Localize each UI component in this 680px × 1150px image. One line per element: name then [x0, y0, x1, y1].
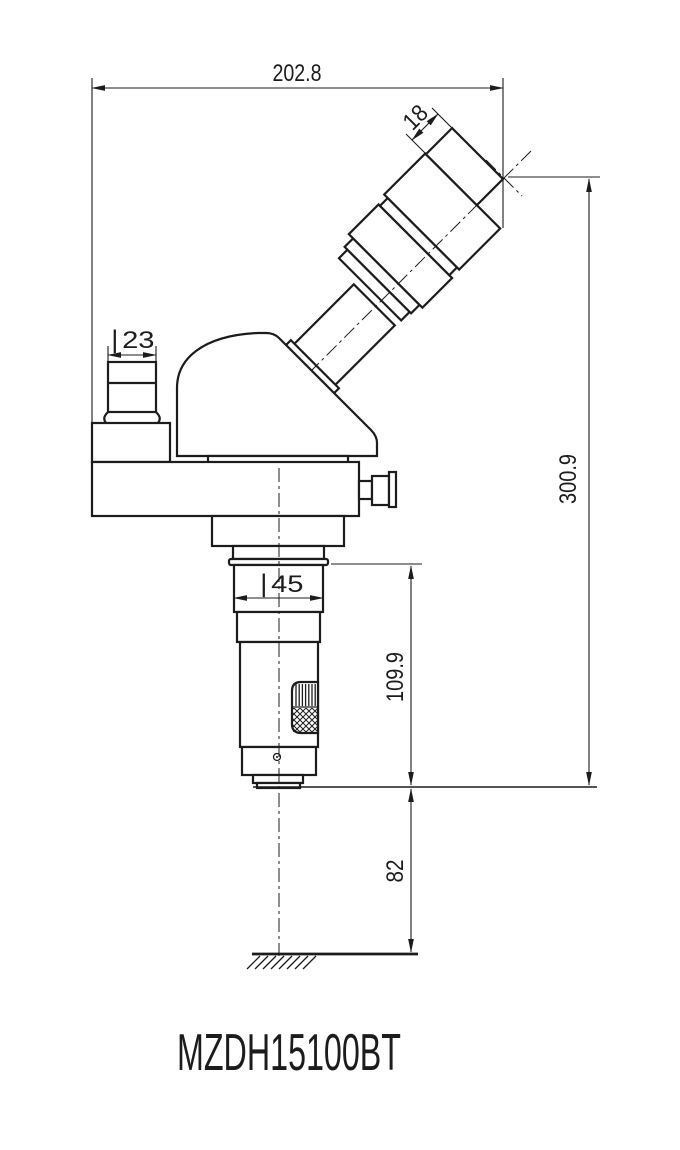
objective-set-screw-center [276, 756, 278, 758]
objective-step [253, 775, 303, 783]
camera-port-base [92, 423, 170, 462]
focus-knob-graduations [296, 684, 315, 706]
dimension-port-diameter: ∣23 [108, 327, 157, 361]
camera-port [92, 362, 170, 462]
focus-knob-knurling [293, 708, 317, 732]
camera-port-tube [108, 362, 156, 412]
dimension-working-distance: 82 [382, 789, 411, 952]
knob-cap [372, 476, 389, 505]
camera-port-collar [104, 412, 159, 423]
dimension-eyepiece-label: 18 [398, 100, 434, 136]
extension-line-tip [432, 108, 452, 128]
model-title: MZDH15100BT [177, 1024, 401, 1082]
dimension-barrel-diameter-label: ∣45 [257, 571, 304, 598]
focus-knob [292, 682, 318, 733]
technical-drawing: 202.8 18 ∣23 ∣45 109.9 300.9 82 MZDH1510… [0, 0, 680, 1150]
dimension-barrel-length: 109.9 [331, 564, 422, 785]
dimension-overall-width-label: 202.8 [273, 60, 322, 87]
extension-line-step [406, 134, 426, 154]
technical-drawing-page: 202.8 18 ∣23 ∣45 109.9 300.9 82 MZDH1510… [0, 0, 680, 1150]
eyepiece-assembly [260, 127, 527, 394]
adjustment-knob [359, 472, 396, 507]
ground-surface [247, 954, 418, 969]
dimension-barrel-length-label: 109.9 [382, 652, 409, 702]
ground-hatching [247, 956, 316, 969]
dimension-port-diameter-label: ∣23 [108, 327, 155, 354]
main-body-block [92, 462, 359, 516]
dimension-working-distance-label: 82 [382, 860, 409, 883]
knob-rim [389, 472, 396, 507]
body-sub-block [212, 516, 344, 546]
dimension-overall-height: 300.9 [508, 177, 600, 785]
knob-stem [359, 481, 372, 499]
dimension-overall-height-label: 300.9 [555, 454, 582, 504]
